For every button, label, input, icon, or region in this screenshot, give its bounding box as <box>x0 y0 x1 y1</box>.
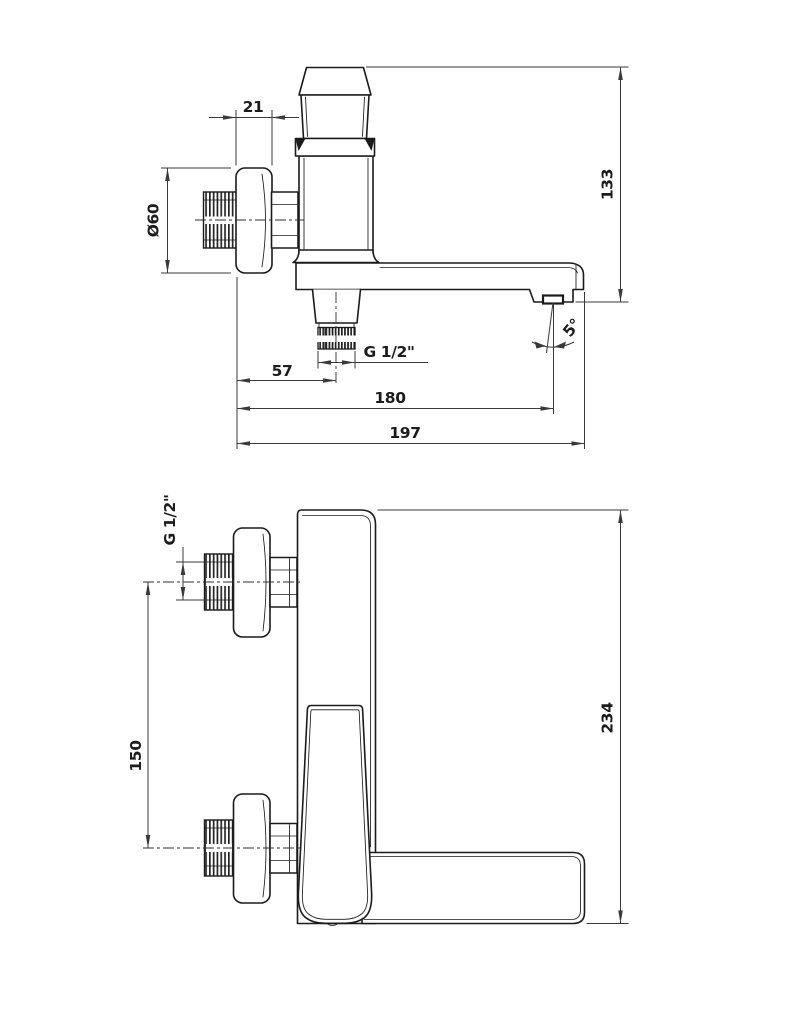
dim-label-height: 133 <box>599 169 617 200</box>
shower-outlet-side <box>313 290 361 350</box>
technical-drawing: 21 Ø60 133 G 1/2" 57 <box>0 0 800 1009</box>
dim-label-total-height: 234 <box>599 702 617 734</box>
aerator-side <box>543 296 563 304</box>
front-view: G 1/2" 150 234 <box>127 494 629 925</box>
spout-front <box>362 853 585 924</box>
dim-shower-outlet-offset: 57 <box>237 362 336 381</box>
dim-label-total-length: 197 <box>389 424 420 442</box>
drawing-page: 21 Ø60 133 G 1/2" 57 <box>0 0 800 1009</box>
side-view: 21 Ø60 133 G 1/2" 57 <box>145 67 629 449</box>
inlet-bottom <box>143 794 303 903</box>
dim-spout-angle: 5° <box>532 303 585 354</box>
dim-label-flange-depth: 21 <box>243 98 264 116</box>
dim-label-spout-angle: 5° <box>559 315 584 340</box>
wall-flange-side <box>236 168 272 273</box>
dim-label-inlet-thread: G 1/2" <box>161 494 179 545</box>
dim-inlet-thread: G 1/2" <box>161 494 208 600</box>
body-side <box>299 156 373 252</box>
angle-arrow-left <box>535 342 547 349</box>
handle-side <box>296 68 375 157</box>
dim-label-outlet-thread: G 1/2" <box>363 343 414 361</box>
dim-label-inlet-spacing: 150 <box>127 740 145 772</box>
dim-inlet-spacing: 150 <box>127 582 148 848</box>
body-base-side <box>293 250 379 263</box>
dim-label-shower-outlet-offset: 57 <box>272 362 293 380</box>
dim-label-flange-diameter: Ø60 <box>145 203 163 237</box>
handle-front <box>298 706 371 926</box>
dim-flange-depth: 21 <box>209 98 299 166</box>
dim-label-spout-reach: 180 <box>374 389 406 407</box>
